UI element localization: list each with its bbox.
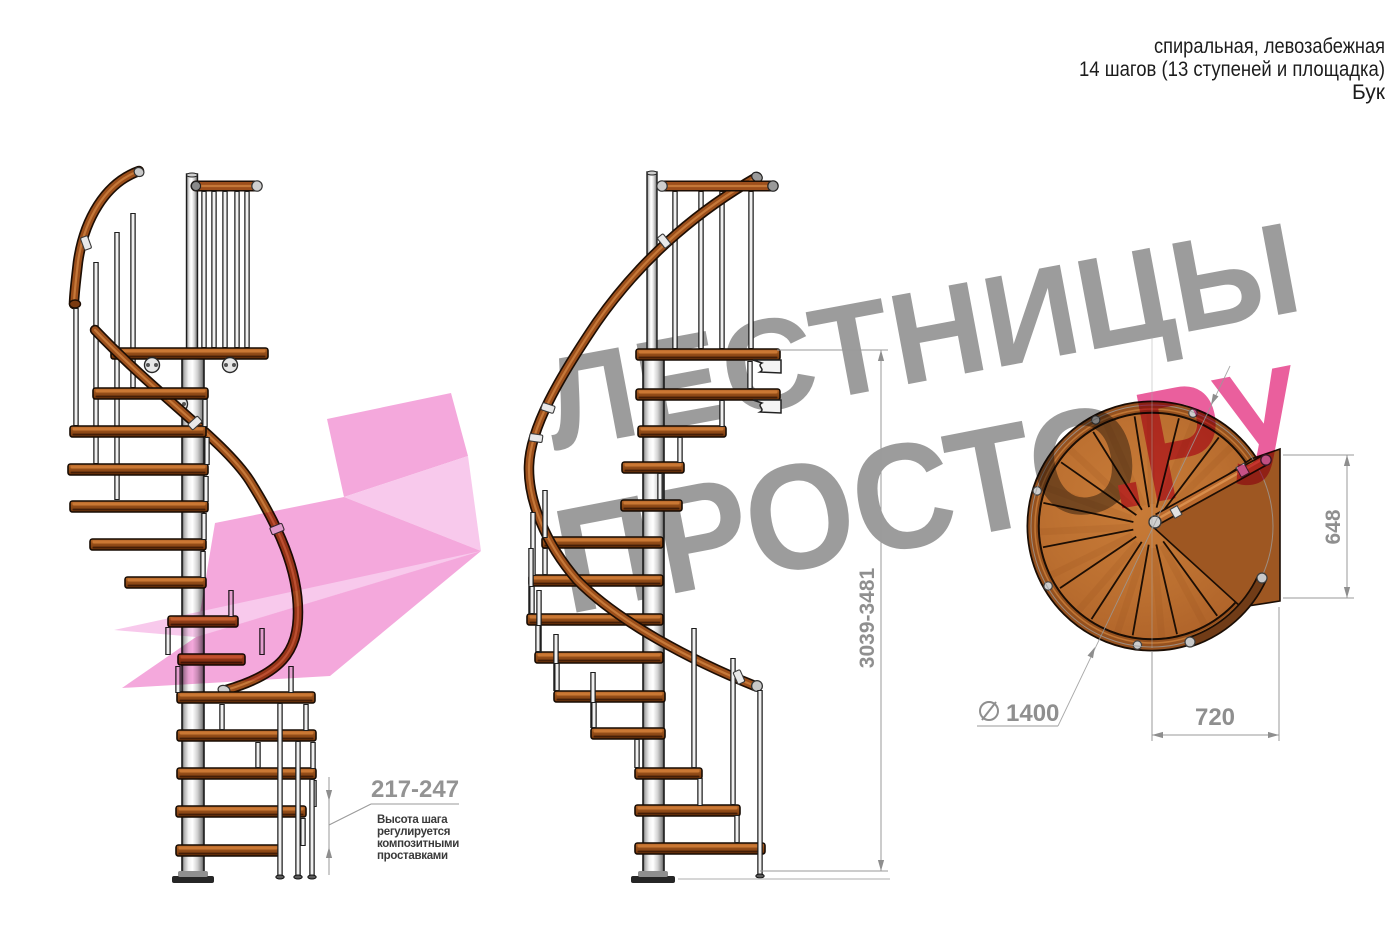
svg-text:1400: 1400 xyxy=(1006,700,1059,727)
svg-text:720: 720 xyxy=(1195,704,1235,731)
svg-text:648: 648 xyxy=(1322,509,1345,544)
svg-text:217-247: 217-247 xyxy=(371,776,459,803)
svg-text:Высота шагарегулируетсякомпози: Высота шагарегулируетсякомпозитнымипрост… xyxy=(377,814,459,862)
svg-text:14 шагов (13 ступеней и площад: 14 шагов (13 ступеней и площадка) xyxy=(1079,58,1385,81)
svg-text:спиральная, левозабежная: спиральная, левозабежная xyxy=(1154,35,1385,58)
svg-text:3039-3481: 3039-3481 xyxy=(856,567,879,668)
svg-text:Бук: Бук xyxy=(1352,81,1386,104)
